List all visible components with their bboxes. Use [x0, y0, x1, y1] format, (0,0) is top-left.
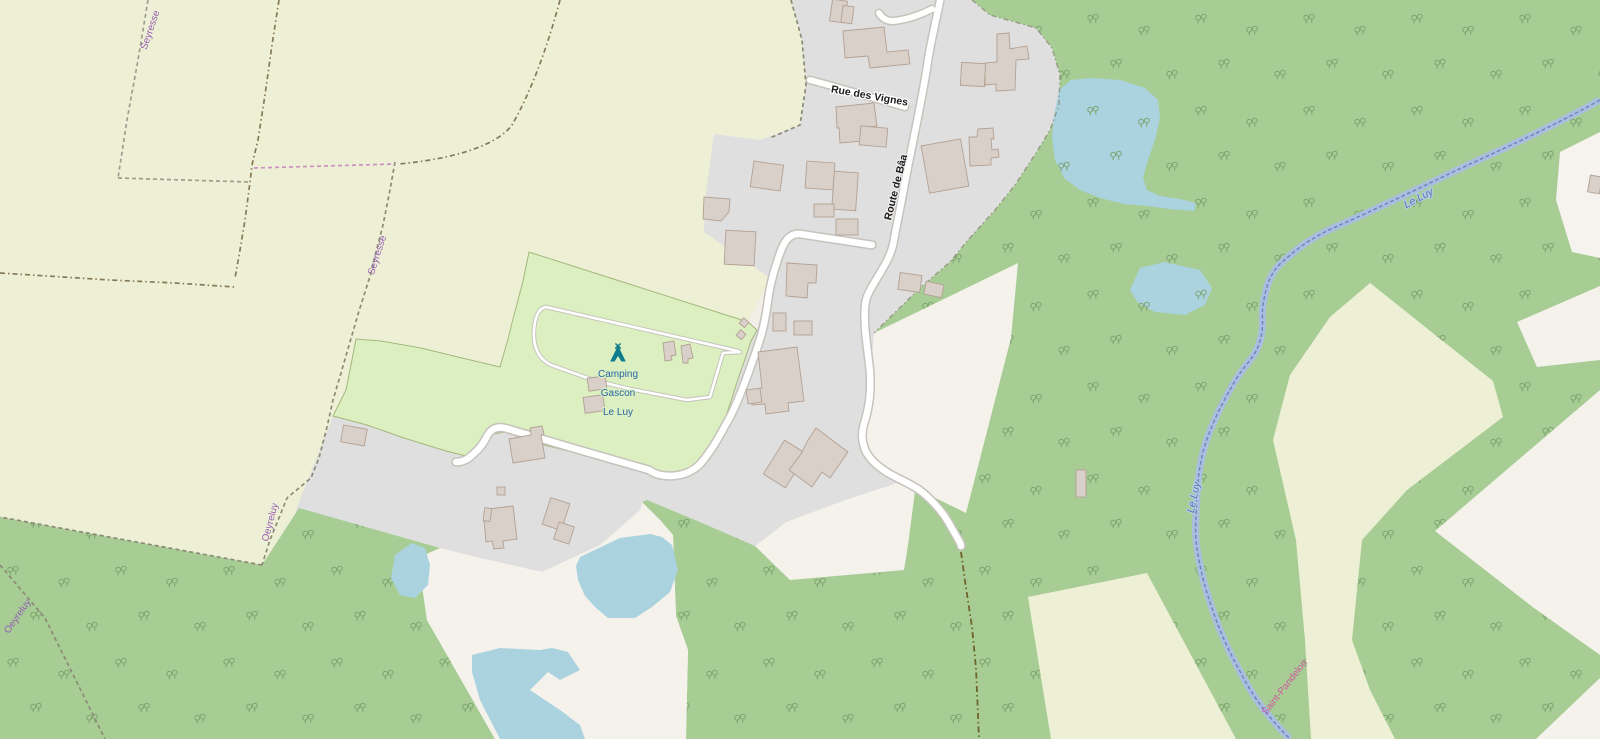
svg-text:Gascon: Gascon — [601, 388, 635, 399]
svg-text:Camping: Camping — [598, 369, 638, 380]
svg-text:Le Luy: Le Luy — [603, 407, 633, 418]
